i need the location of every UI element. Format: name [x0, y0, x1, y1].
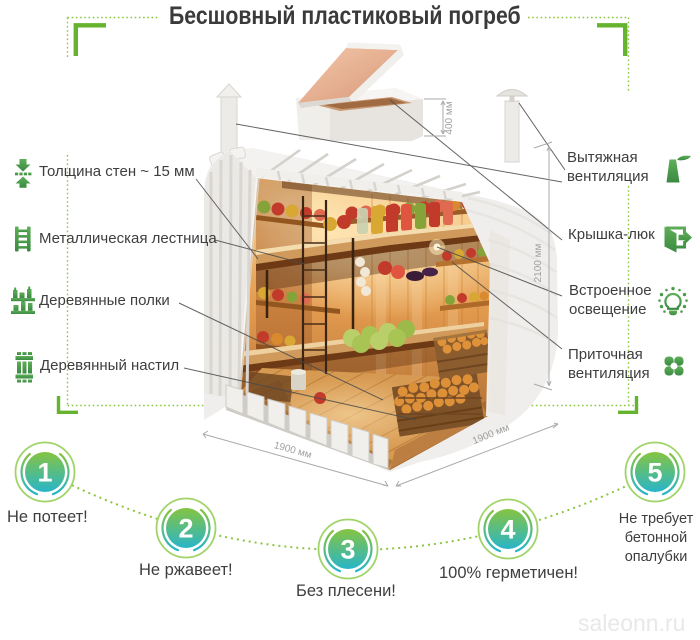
svg-text:2100 мм: 2100 мм [533, 243, 544, 282]
svg-text:4: 4 [500, 515, 515, 545]
svg-text:3: 3 [340, 535, 355, 565]
svg-text:1: 1 [37, 458, 52, 488]
svg-text:400 мм: 400 мм [444, 101, 455, 134]
svg-text:5: 5 [647, 458, 662, 488]
svg-text:2: 2 [178, 514, 193, 544]
svg-text:1900 мм: 1900 мм [273, 440, 313, 461]
